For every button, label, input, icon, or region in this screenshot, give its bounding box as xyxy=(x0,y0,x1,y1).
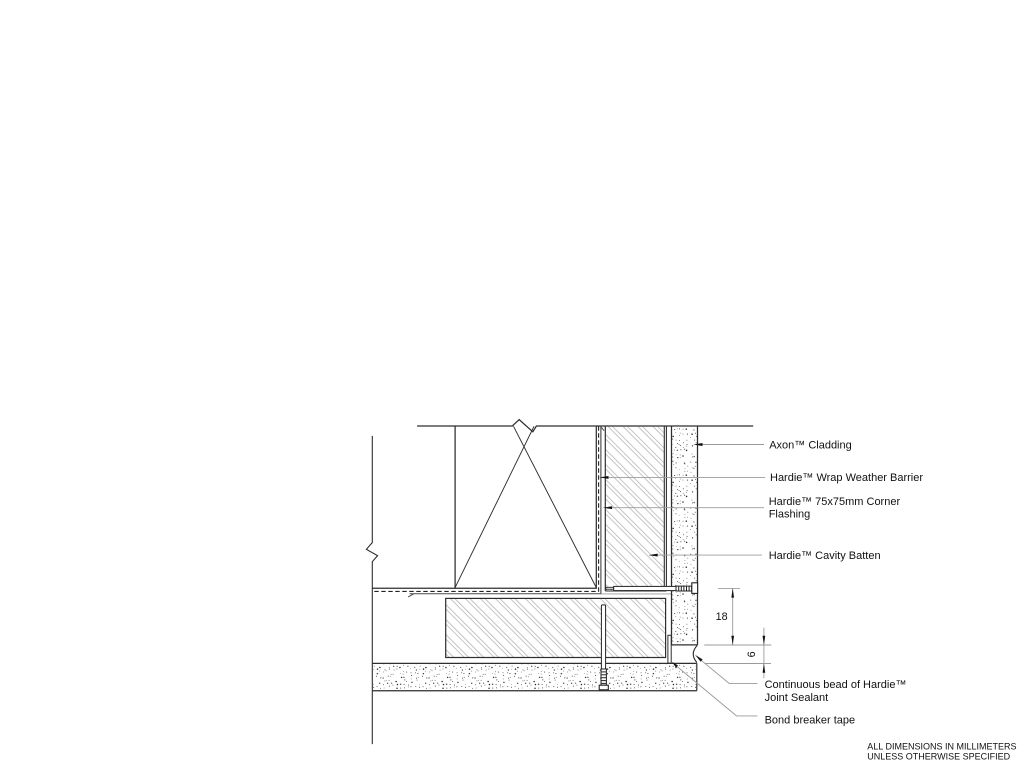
svg-text:Flashing: Flashing xyxy=(769,509,811,521)
svg-text:6: 6 xyxy=(746,651,758,657)
svg-text:Bond breaker tape: Bond breaker tape xyxy=(765,714,856,726)
svg-text:Continuous bead of Hardie™: Continuous bead of Hardie™ xyxy=(765,679,907,691)
svg-text:18: 18 xyxy=(716,611,728,623)
svg-text:ALL DIMENSIONS IN MILLIMETERS: ALL DIMENSIONS IN MILLIMETERS xyxy=(867,741,1016,751)
svg-text:UNLESS OTHERWISE SPECIFIED: UNLESS OTHERWISE SPECIFIED xyxy=(867,752,1010,762)
svg-text:Hardie™ Wrap Weather Barrier: Hardie™ Wrap Weather Barrier xyxy=(770,472,923,484)
svg-text:Joint Sealant: Joint Sealant xyxy=(765,692,829,704)
svg-text:Hardie™ Cavity Batten: Hardie™ Cavity Batten xyxy=(769,550,881,562)
svg-text:Axon™ Cladding: Axon™ Cladding xyxy=(769,439,852,451)
svg-text:Hardie™ 75x75mm Corner: Hardie™ 75x75mm Corner xyxy=(769,496,901,508)
